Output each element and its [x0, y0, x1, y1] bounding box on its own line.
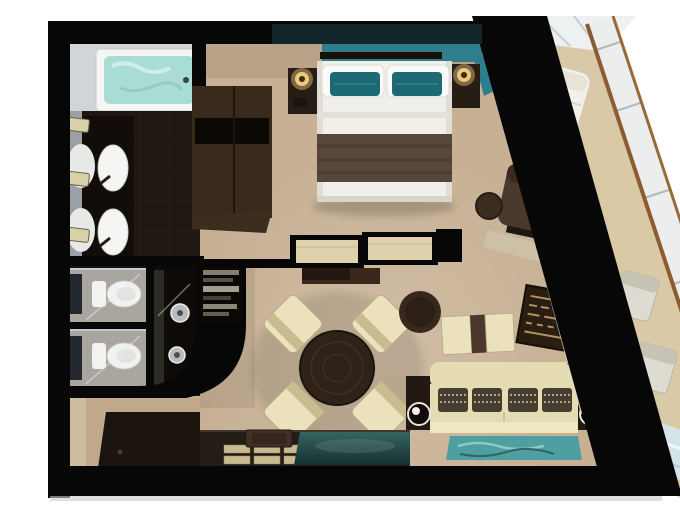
serving-tray: [246, 430, 292, 447]
sofa-pillow-2: [472, 388, 502, 412]
divider-wall-left: [198, 259, 294, 268]
outer-wall-left: [48, 21, 70, 498]
outer-wall-bottom: [48, 466, 662, 496]
sofa-front-edge: [430, 422, 578, 433]
wc2-wall-panel: [70, 336, 82, 380]
duvet-fold: [317, 112, 452, 118]
wc-shower-wall: [146, 262, 154, 394]
shower-head-1: [171, 304, 189, 322]
phone: [294, 98, 307, 107]
sofa-pillow-1: [438, 388, 468, 412]
nightstand-left: [288, 68, 317, 114]
floor-mat: [98, 412, 200, 468]
wall-shadow: [50, 496, 662, 501]
wardrobe: [192, 86, 272, 233]
wc-divider-wall: [66, 322, 150, 330]
entry-wall: [70, 398, 86, 468]
ottoman-round: [399, 291, 441, 333]
teal-rug: [446, 436, 582, 460]
sofa-pillow-4: [542, 388, 572, 412]
sofa-pillow-3: [508, 388, 538, 412]
sink: [98, 145, 128, 191]
wardrobe-recess: [195, 118, 269, 144]
bathroom: [61, 44, 206, 258]
water-closet-1: [68, 269, 148, 323]
wc1-wall-panel: [70, 274, 82, 314]
tub-drain: [183, 77, 189, 83]
floorplan-canvas: [40, 16, 680, 502]
footstool: [476, 193, 502, 219]
sliding-panel-1: [290, 235, 364, 268]
placemat: [254, 456, 280, 464]
door-stop: [118, 450, 123, 455]
entry-hall: [70, 398, 200, 468]
water-closet-2: [68, 330, 148, 390]
glass-top-teal: [294, 432, 410, 465]
tv-console: [302, 268, 380, 284]
speaker-left: [408, 403, 430, 425]
sliding-panel-2: [362, 232, 438, 265]
headboard-wall-dark-teal: [272, 24, 482, 44]
bed-runner: [317, 134, 452, 182]
headboard-shelf: [320, 52, 442, 59]
corner-shading: [200, 268, 255, 408]
divider-wall-right: [436, 229, 462, 262]
shower-floor-strip: [154, 270, 164, 388]
suite-floorplan: [40, 16, 680, 502]
bed: [312, 61, 456, 216]
dining-table: [300, 331, 374, 405]
bed-foot: [317, 196, 452, 202]
shower-head-2: [169, 347, 185, 363]
bathtub: [96, 49, 200, 111]
placemat: [224, 456, 250, 464]
nightstand-right: [450, 64, 480, 108]
bench-seat: [441, 313, 515, 355]
sink: [98, 209, 128, 255]
